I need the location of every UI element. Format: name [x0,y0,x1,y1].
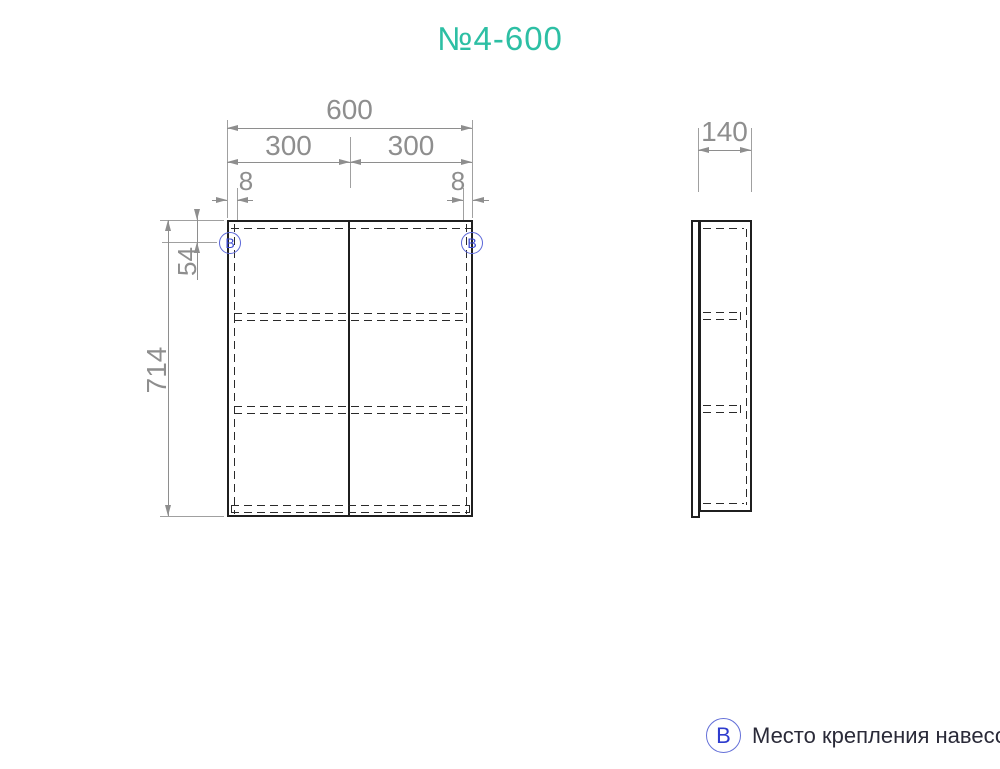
dashed-edge [466,406,467,414]
dashed-edge [703,312,741,313]
front-shelf-2 [234,406,467,414]
dimension-value-714: 714 [129,342,185,398]
front-left-side-panel-dashed-line [234,224,235,514]
dashed-edge [466,313,467,321]
hinge-marker-right: В [461,232,483,254]
arrowhead-icon [165,220,171,231]
dashed-edge [740,405,741,413]
drawing-canvas: №4-600 В В [0,0,1000,769]
hinge-marker-left: В [219,232,241,254]
arrowhead-icon [461,125,472,131]
front-view-outline [227,220,473,517]
dimension-value-300-left: 300 [227,132,350,160]
arrowhead-icon [227,125,238,131]
dashed-edge [703,319,741,320]
dashed-edge [234,406,235,414]
front-shelf-1 [234,313,467,321]
dashed-edge [703,405,741,406]
side-shelf-2 [703,405,741,413]
dashed-edge [234,320,467,321]
side-bottom-panel-dashed-line [703,503,744,504]
dashed-edge [234,406,467,407]
arrowhead-icon [473,197,484,203]
dimension-total-width: 600 [227,128,472,129]
dimension-value-8-right: 8 [449,168,467,194]
front-top-panel-dashed-line [231,228,471,229]
arrowhead-icon [740,147,751,153]
dimension-value-54: 54 [173,248,201,276]
arrowhead-icon [216,197,227,203]
dimension-line [227,128,472,129]
side-view-door-panel [691,220,700,518]
extension-line [160,516,224,517]
side-shelf-1 [703,312,741,320]
arrowhead-icon [194,209,200,220]
dimension-depth: 140 [698,150,751,151]
dimension-door-widths: 300 300 [227,162,472,163]
dashed-edge [231,512,470,513]
dimension-height: 714 [168,220,169,516]
dashed-edge [234,313,235,321]
dimension-value-300-right: 300 [350,132,472,160]
dashed-edge [234,413,467,414]
arrowhead-icon [237,197,248,203]
arrowhead-icon [452,197,463,203]
arrowhead-icon [165,505,171,516]
drawing-title: №4-600 [0,20,1000,58]
dashed-edge [703,412,741,413]
arrowhead-icon [698,147,709,153]
front-bottom-panel [231,505,470,513]
dimension-left-offset: 8 [212,200,253,201]
front-right-side-panel-dashed-line [466,224,467,514]
extension-line [162,242,217,243]
dimension-value-8-left: 8 [237,168,255,194]
legend-text: Место крепления навесов [752,723,1000,749]
dashed-edge [231,505,470,506]
dimension-value-140: 140 [688,118,761,146]
dashed-edge [740,312,741,320]
dashed-edge [469,505,470,513]
dashed-edge [234,313,467,314]
extension-line [472,120,473,218]
front-door-split-line [348,220,350,517]
dimension-hinge-offset: 54 [197,209,198,280]
side-view-carcass-outline [699,220,752,512]
side-top-panel-dashed-line [703,228,744,229]
legend-symbol-circle: В [706,718,741,753]
side-back-panel-dashed-line [746,229,747,505]
dimension-right-offset: 8 [447,200,489,201]
dimension-value-600: 600 [227,96,472,124]
dashed-edge [231,505,232,513]
